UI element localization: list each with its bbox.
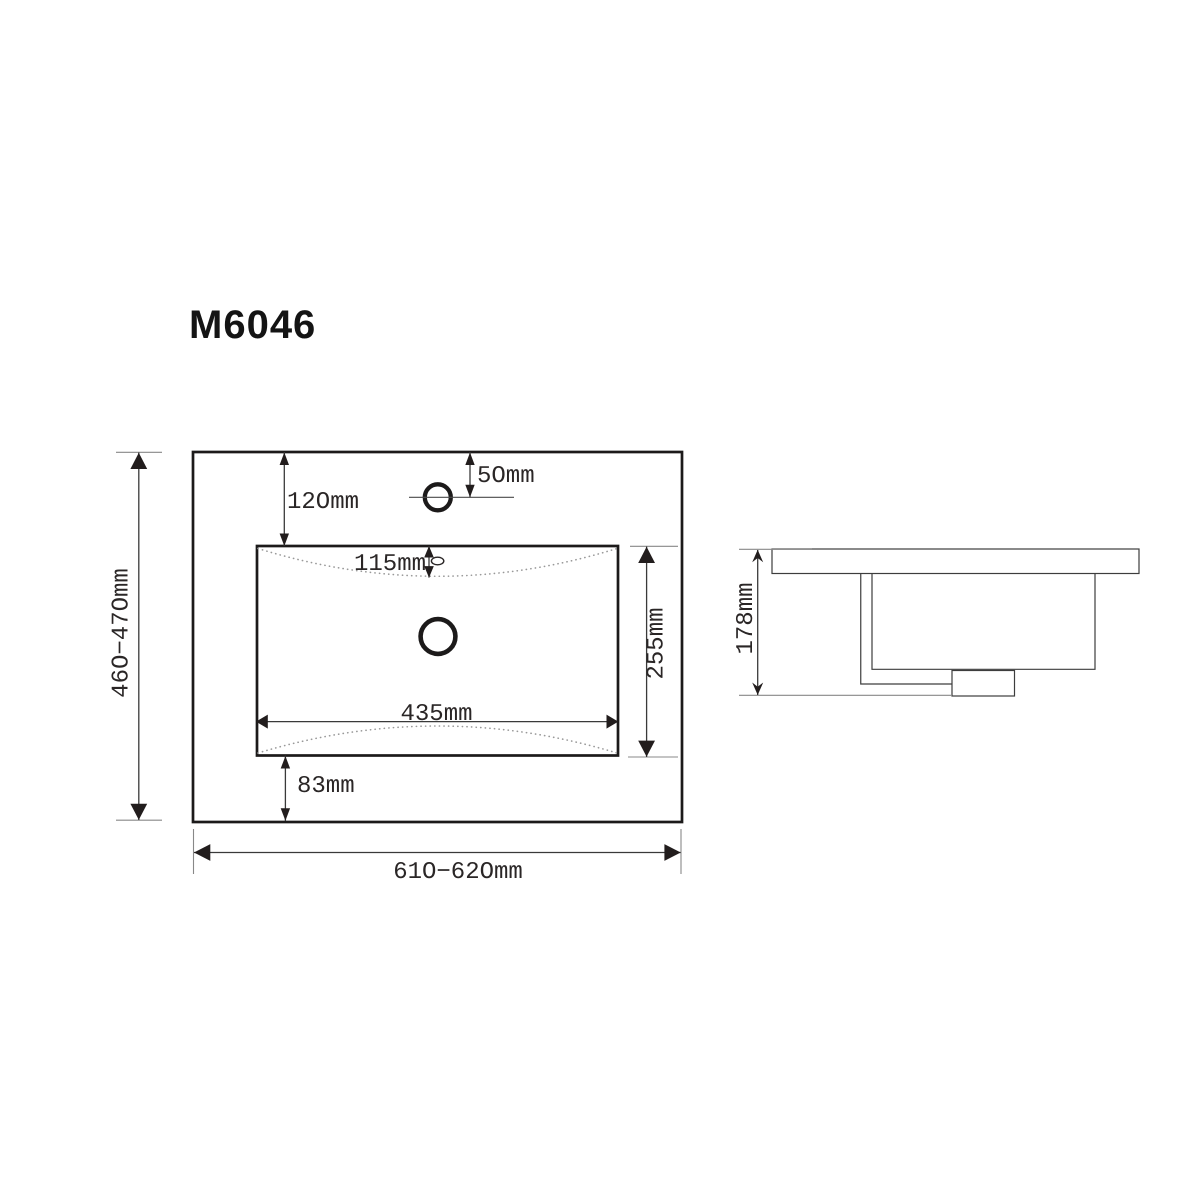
svg-text:83mm: 83mm [297, 773, 355, 800]
svg-text:178mm: 178mm [733, 582, 760, 654]
svg-text:12Omm: 12Omm [287, 489, 359, 516]
svg-text:61O−62Omm: 61O−62Omm [393, 859, 523, 886]
svg-text:M6046: M6046 [189, 303, 316, 347]
svg-text:5Omm: 5Omm [477, 463, 535, 490]
svg-text:435mm: 435mm [400, 701, 472, 728]
svg-text:255mm: 255mm [644, 607, 671, 679]
svg-text:115mm: 115mm [354, 551, 426, 578]
svg-text:46O−47Omm: 46O−47Omm [109, 568, 136, 698]
